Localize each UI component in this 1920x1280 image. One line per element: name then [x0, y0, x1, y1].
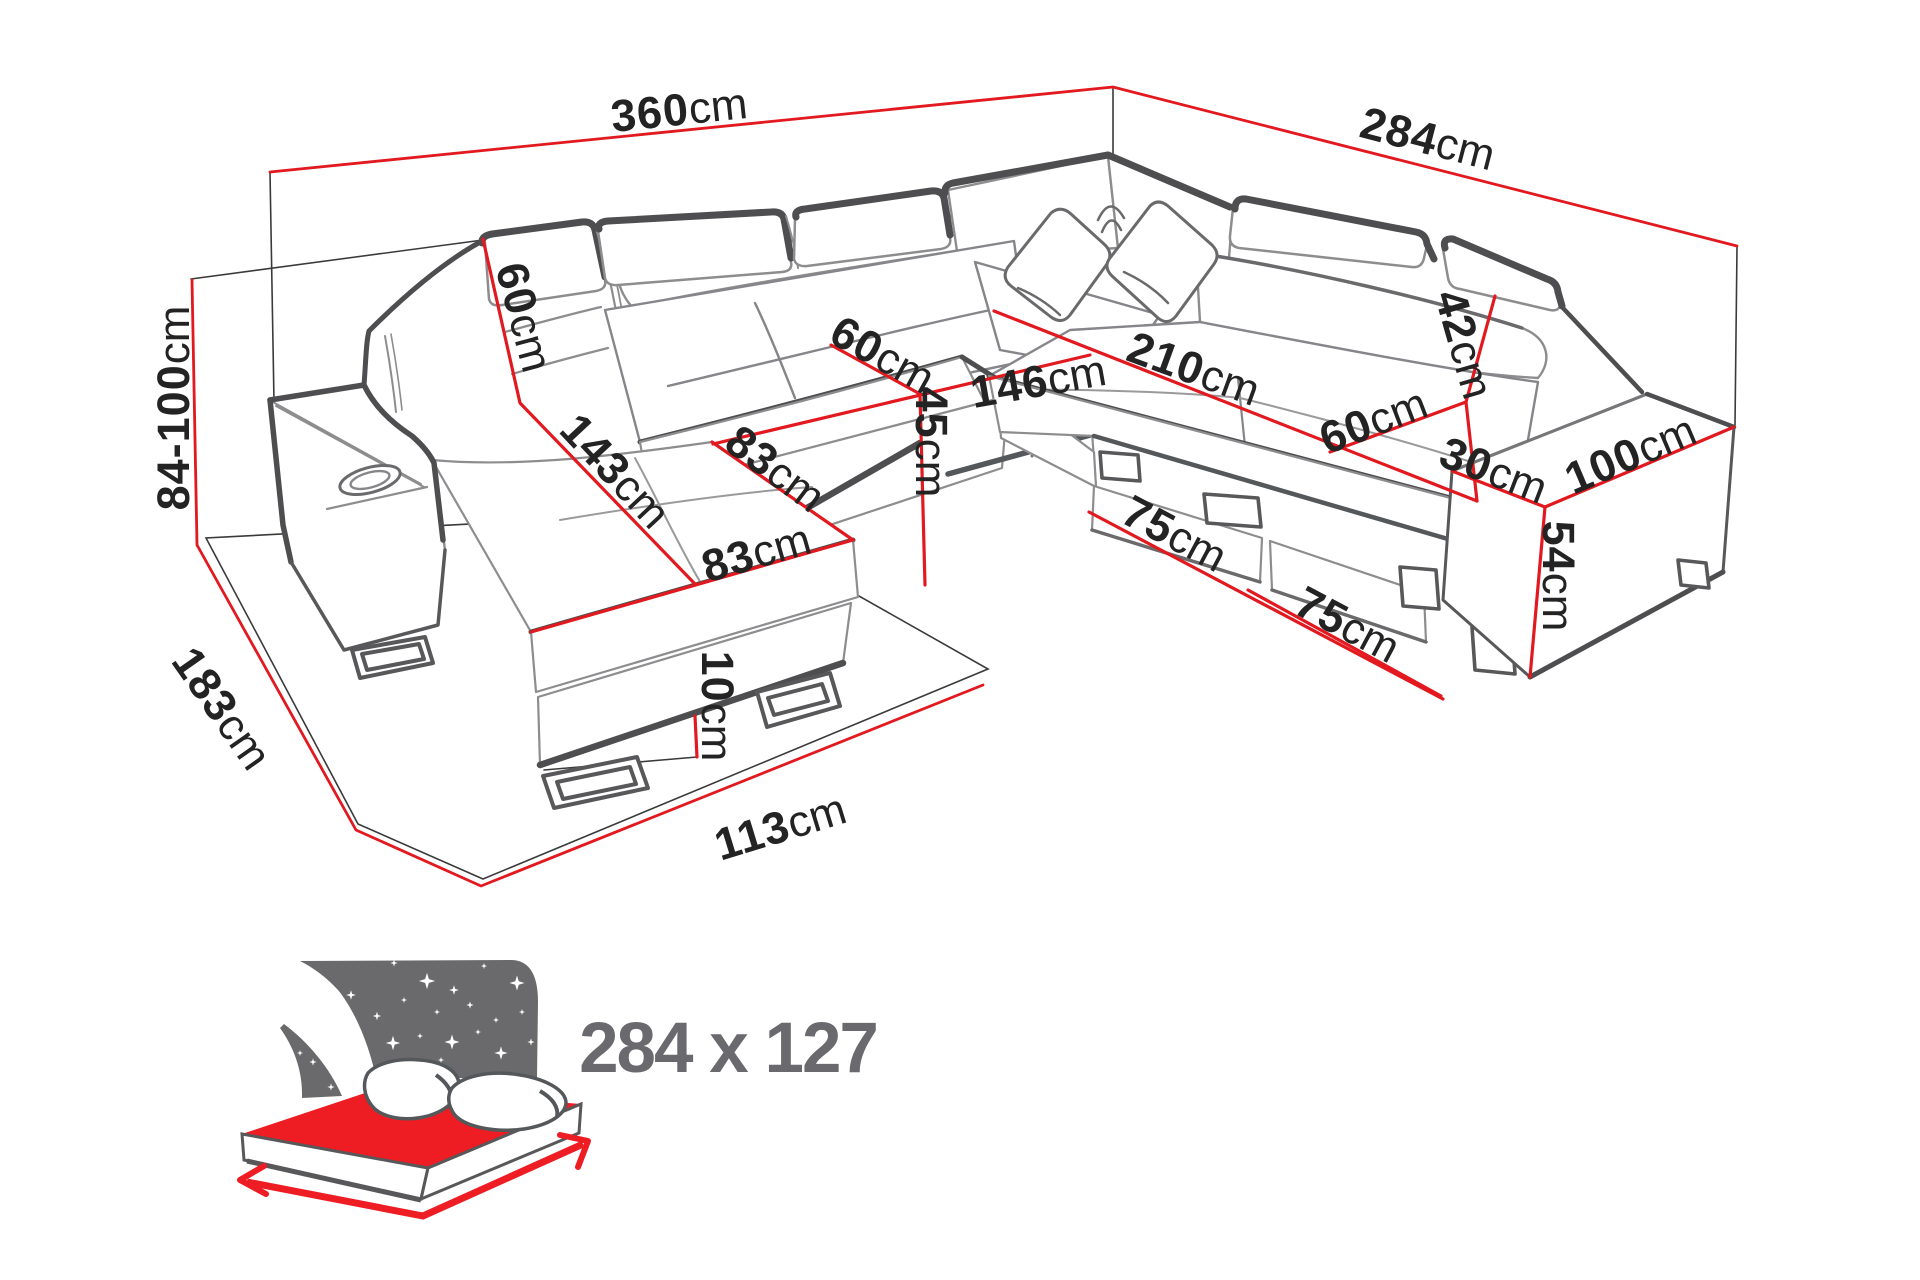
svg-text:10cm: 10cm	[692, 651, 743, 762]
svg-text:284 x 127: 284 x 127	[579, 1009, 877, 1088]
svg-text:84-100cm: 84-100cm	[148, 306, 199, 511]
svg-text:45cm: 45cm	[906, 387, 957, 498]
svg-text:54cm: 54cm	[1533, 521, 1584, 632]
